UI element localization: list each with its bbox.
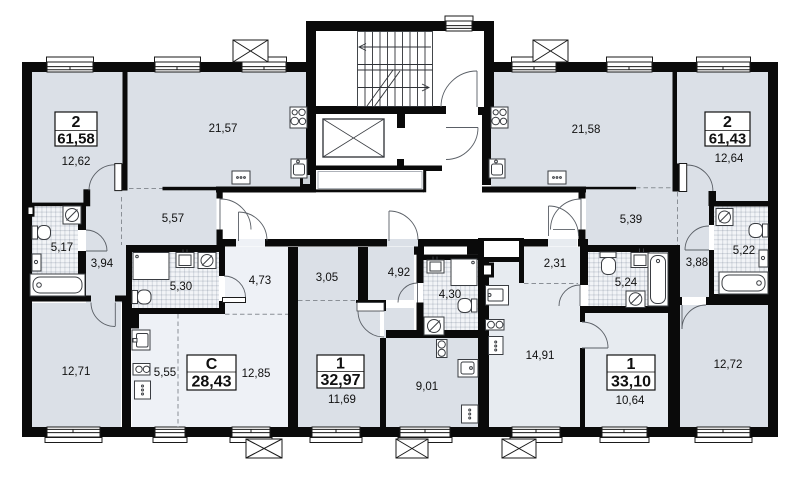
svg-text:61,43: 61,43 <box>709 131 747 148</box>
svg-text:4,30: 4,30 <box>439 289 461 301</box>
svg-text:2: 2 <box>72 114 81 131</box>
svg-text:10,64: 10,64 <box>616 395 645 407</box>
svg-text:12,72: 12,72 <box>714 359 743 371</box>
svg-text:32,97: 32,97 <box>320 372 360 389</box>
svg-text:2: 2 <box>723 114 732 131</box>
svg-text:9,01: 9,01 <box>416 381 438 393</box>
svg-text:5,30: 5,30 <box>170 281 192 293</box>
svg-text:2,31: 2,31 <box>544 258 566 270</box>
svg-text:61,58: 61,58 <box>57 131 95 148</box>
svg-text:11,69: 11,69 <box>328 394 356 406</box>
svg-text:5,55: 5,55 <box>154 367 176 379</box>
svg-text:21,57: 21,57 <box>209 123 238 135</box>
svg-text:4,92: 4,92 <box>388 267 410 279</box>
svg-text:5,17: 5,17 <box>51 242 73 254</box>
svg-text:12,64: 12,64 <box>715 153 744 165</box>
svg-text:28,43: 28,43 <box>191 374 231 391</box>
svg-text:12,71: 12,71 <box>62 366 91 378</box>
svg-text:14,91: 14,91 <box>526 350 555 362</box>
svg-text:5,24: 5,24 <box>615 277 638 289</box>
svg-text:1: 1 <box>627 356 636 373</box>
svg-text:5,57: 5,57 <box>162 213 184 225</box>
svg-text:C: C <box>206 356 218 373</box>
svg-text:5,39: 5,39 <box>620 214 642 226</box>
svg-text:21,58: 21,58 <box>572 124 601 136</box>
svg-text:3,05: 3,05 <box>316 272 338 284</box>
svg-text:4,73: 4,73 <box>249 275 271 287</box>
svg-text:3,88: 3,88 <box>686 257 708 269</box>
svg-text:12,85: 12,85 <box>242 368 271 380</box>
svg-text:12,62: 12,62 <box>62 156 91 168</box>
svg-text:1: 1 <box>336 356 345 373</box>
svg-text:3,94: 3,94 <box>91 258 114 270</box>
svg-text:33,10: 33,10 <box>611 374 651 391</box>
svg-text:5,22: 5,22 <box>733 245 755 257</box>
